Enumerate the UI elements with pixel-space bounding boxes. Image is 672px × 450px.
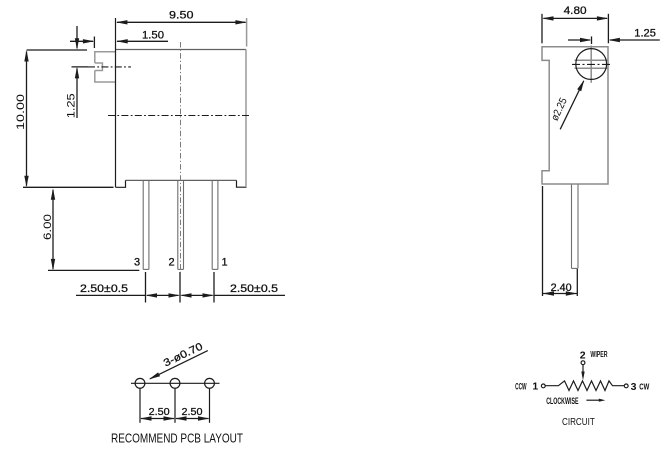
svg-text:1: 1 (221, 257, 227, 269)
svg-text:1.50: 1.50 (142, 30, 164, 42)
svg-text:9.50: 9.50 (169, 10, 194, 22)
svg-text:2.50: 2.50 (149, 406, 170, 418)
svg-text:CIRCUIT: CIRCUIT (562, 417, 595, 428)
svg-text:CLOCKWISE: CLOCKWISE (546, 396, 578, 406)
svg-text:WIPER: WIPER (590, 350, 607, 359)
svg-text:1: 1 (532, 381, 538, 393)
svg-text:1.25: 1.25 (634, 28, 656, 40)
svg-text:CCW: CCW (515, 382, 527, 392)
svg-text:2.50±0.5: 2.50±0.5 (230, 283, 278, 295)
svg-text:CW: CW (639, 381, 650, 391)
svg-text:RECOMMEND PCB LAYOUT: RECOMMEND PCB LAYOUT (111, 431, 243, 446)
svg-text:6.00: 6.00 (42, 214, 54, 240)
svg-text:1.25: 1.25 (65, 93, 77, 118)
svg-text:2.40: 2.40 (551, 282, 572, 294)
svg-text:2: 2 (168, 257, 174, 269)
svg-text:3: 3 (631, 381, 637, 393)
svg-text:2.50±0.5: 2.50±0.5 (80, 283, 128, 295)
svg-text:2.50: 2.50 (182, 406, 203, 418)
svg-text:4.80: 4.80 (564, 5, 587, 17)
svg-text:3: 3 (134, 257, 140, 269)
svg-text:10.00: 10.00 (15, 94, 27, 130)
svg-text:2: 2 (580, 349, 586, 361)
